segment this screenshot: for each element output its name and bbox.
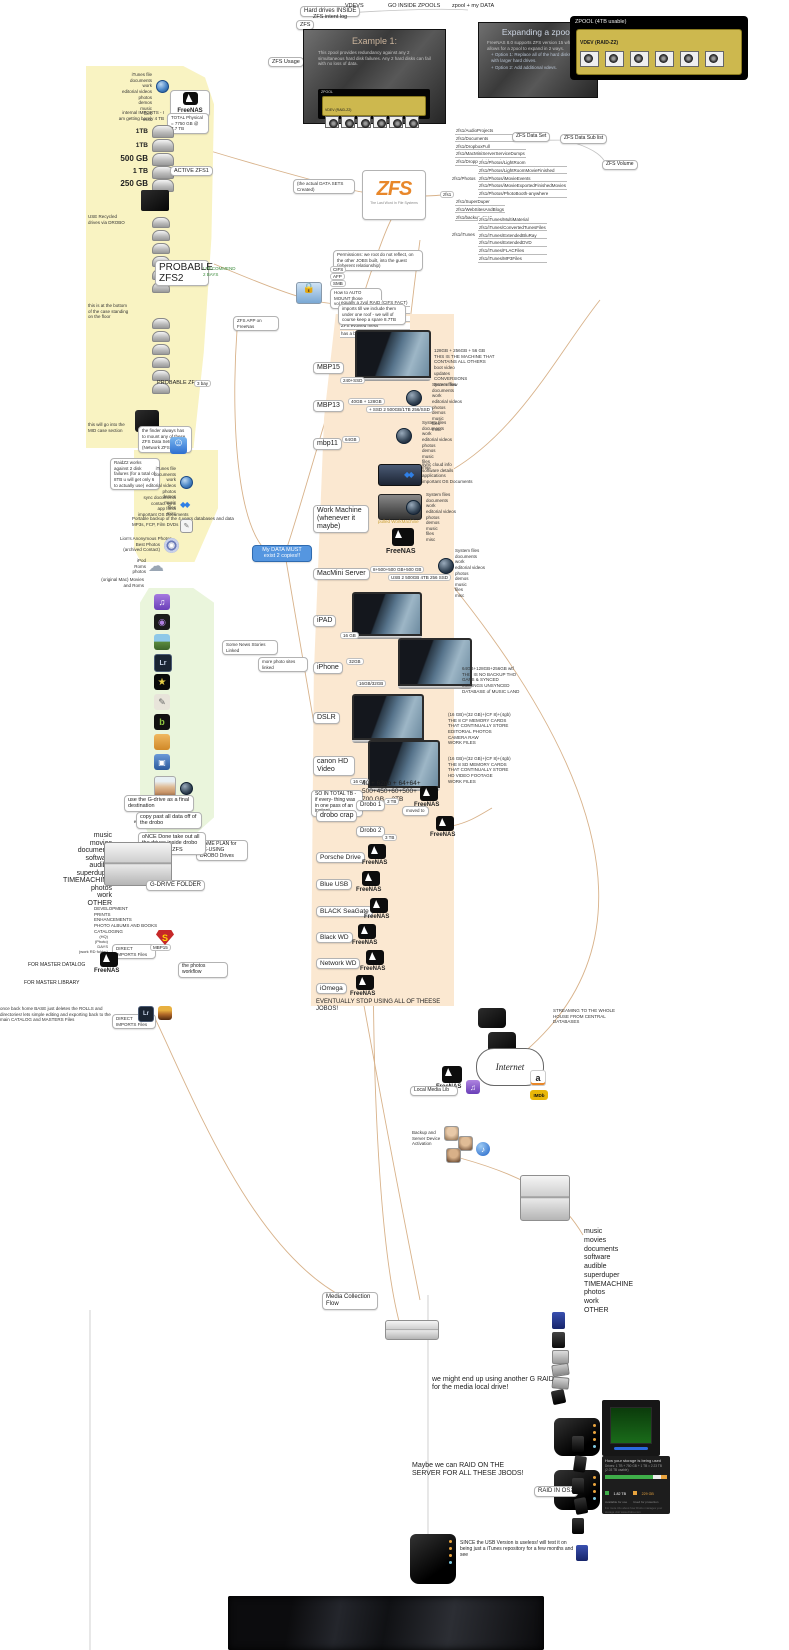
list-item: zfs1/iTunes/FLACFiles xyxy=(478,248,547,255)
recycled-drives-note: USE Recycled drives via DROBO xyxy=(88,214,128,225)
avatar-icon xyxy=(444,1126,459,1141)
macmini-usb-tag: USB 2 500GB 4TB 256 SSD xyxy=(388,574,451,581)
node-porsche-drive[interactable]: Porsche Drive xyxy=(316,852,365,863)
list-item: WORK FILES xyxy=(448,740,508,746)
node-probable-zfs2[interactable]: PROBABLE ZFS2 xyxy=(155,260,209,286)
aperture-app-icon[interactable]: ◉ xyxy=(154,614,170,630)
machine-content-list: System filesdocumentsworkeditorial video… xyxy=(455,548,500,599)
slide-zpool-box: ZPOOL VDEV (RAID-Z2) xyxy=(318,89,430,119)
zfs-app-freenas-label[interactable]: ZFS APP on FreeNas xyxy=(233,316,279,331)
list-item: zfs1/Photos/iMovieExportedFinishedMovies xyxy=(478,183,567,190)
list-item: photos xyxy=(60,885,112,893)
network-globe-icon[interactable] xyxy=(438,558,454,574)
iphone-image xyxy=(398,638,472,689)
node-media-collection-flow[interactable]: Media Collection Flow xyxy=(322,1292,378,1310)
ipad-storage-tag: 16 GB xyxy=(340,632,359,639)
node-work-machine[interactable]: Work Machine (whenever it maybe) xyxy=(313,505,369,533)
node-drobo1[interactable]: Drobo 1 xyxy=(356,800,385,811)
dslr-image xyxy=(352,694,424,743)
gdrive-step2[interactable]: copy past all data off of the drobo xyxy=(136,812,202,829)
drive-label: 1TB xyxy=(126,128,148,136)
mindmap-canvas: Hard drives INSIDE VDEVS GO INSIDE ZPOOL… xyxy=(0,0,789,1650)
zfs-photos-children[interactable]: zfs1/Photos/LightRoomzfs1/Photos/LightRo… xyxy=(478,160,567,199)
node-mbp11[interactable]: mbp11 xyxy=(313,438,342,450)
photos-app-icon[interactable] xyxy=(154,634,170,650)
label-vdevs[interactable]: VDEVS xyxy=(345,3,364,10)
dvd-disc-icon[interactable] xyxy=(164,538,179,553)
freenas-icon[interactable] xyxy=(420,786,438,801)
node-iomega[interactable]: iOmega xyxy=(316,983,347,994)
shared-folder-lock-icon[interactable]: 🔒 xyxy=(296,282,322,304)
legend-label: Used for protection xyxy=(633,1500,658,1504)
list-item: sync documents xyxy=(138,495,176,501)
mbp15-tag: MBP15 xyxy=(150,944,171,951)
portable-backup-list: Portable backup of the 4 years databases… xyxy=(132,516,176,527)
node-network-wd[interactable]: Network WD xyxy=(316,958,360,969)
work-hdd-caption: pulled WorkMachine xyxy=(378,519,419,525)
network-globe-icon[interactable] xyxy=(180,476,193,489)
mbp11-storage-tag: 64GB xyxy=(342,436,360,443)
list-item: work xyxy=(60,892,112,900)
list-item: important OS Documents xyxy=(422,479,472,485)
list-item: zfs1/Photos/LightRoomMovieFinished xyxy=(478,168,567,175)
recommend-note: I RECOMMEND 2 BAYS xyxy=(203,266,237,277)
list-item: documents xyxy=(584,1246,633,1255)
legend-swatch xyxy=(605,1491,609,1495)
hard-drive-icon[interactable] xyxy=(152,243,170,254)
node-dslr[interactable]: DSLR xyxy=(313,712,340,724)
freenas-icon[interactable] xyxy=(436,816,454,831)
list-item: zfs1/Photos/iMovieEvents xyxy=(478,176,567,183)
network-globe-icon[interactable] xyxy=(156,80,169,93)
list-item: photos xyxy=(122,569,146,575)
appletv-icon[interactable] xyxy=(478,1008,506,1028)
black-drive-icon[interactable] xyxy=(574,1497,589,1515)
usb-version-note: SINCE the USB Version is useless! will t… xyxy=(460,1540,576,1558)
list-item: software xyxy=(584,1254,633,1263)
node-canon-hd-video[interactable]: canon HD Video xyxy=(313,756,355,776)
canon-detail-list: (16 GB)+(32 GB)+(CF 8)+(4gb)THE 8 SD MEM… xyxy=(448,756,508,784)
news-links-label[interactable]: Some News Stories Linked xyxy=(222,640,278,655)
vdev-label: VDEV (RAID-Z2) xyxy=(325,108,351,112)
disk-icon xyxy=(605,51,624,67)
disk-icon xyxy=(405,116,419,128)
list-item: editorial videos xyxy=(142,483,176,489)
dropbox-icon[interactable]: ◆◆ xyxy=(404,470,412,479)
disk-icon xyxy=(357,116,371,128)
freenas-icon[interactable] xyxy=(392,528,414,546)
boxee-app-icon[interactable]: b xyxy=(154,714,170,730)
lightroom-app-icon[interactable]: Lr xyxy=(154,654,172,672)
jbod-footer-note: EVENTUALLY STOP USING ALL OF THEESE JOBO… xyxy=(316,999,456,1013)
freenas-label: FreeNAS xyxy=(350,991,375,997)
freenas-label: FreeNAS xyxy=(94,968,119,974)
raid-server-note: Maybe we can RAID ON THE SERVER FOR ALL … xyxy=(412,1462,524,1479)
drobo-dashboard-screenshot xyxy=(602,1400,660,1456)
slide-title: Example 1: xyxy=(304,36,445,46)
drobo-back-image xyxy=(141,190,169,211)
node-iphone[interactable]: iPhone xyxy=(313,662,343,674)
list-item: music xyxy=(60,832,112,840)
mbp13-storage-tag: 40GB + 128GB xyxy=(348,398,385,405)
protocol-smb[interactable]: SMB xyxy=(330,280,346,287)
freenas-label: FreeNAS xyxy=(364,914,389,920)
bottom-screenshot-strip xyxy=(228,1596,544,1650)
disk-icon xyxy=(680,51,699,67)
freenas-icon xyxy=(183,92,198,105)
vmware-app-icon[interactable]: ▣ xyxy=(154,754,170,770)
gdrive-step1[interactable]: use the G-drive as a final destination xyxy=(124,795,194,812)
list-item: zfs1/iTunes/ExtendedDVD xyxy=(478,240,547,247)
freenas-label: FreeNAS xyxy=(386,548,416,555)
textedit-icon[interactable]: ✎ xyxy=(180,519,193,533)
slide-body: This zpool provides redundancy against a… xyxy=(318,50,433,67)
label-zpool-my-data[interactable]: zpool + my DATA xyxy=(452,3,494,10)
photo-sites-label[interactable]: more photo sites linked xyxy=(258,657,308,672)
list-item: MUSINGS UNSYNCED xyxy=(462,683,518,689)
list-item: work xyxy=(584,1298,633,1307)
zfs-logo-caption: The Last Word In File Systems xyxy=(366,201,422,205)
freenas-label: FreeNAS xyxy=(414,802,439,808)
silver-drive-icon[interactable] xyxy=(552,1376,570,1389)
itunes-blue-icon[interactable]: ♪ xyxy=(476,1142,490,1156)
master-datalog-label: FOR MASTER DATALOG xyxy=(28,962,85,968)
node-mbp13[interactable]: MBP13 xyxy=(313,400,344,412)
dvd-archive-list: Lion's Anonymous PhotosBest Photos(archi… xyxy=(120,536,160,553)
lightroom-icon[interactable]: Lr xyxy=(138,1006,154,1022)
node-drobo2[interactable]: Drobo 2 xyxy=(356,826,385,837)
graid-plan-note: we might end up using another G RAID for… xyxy=(432,1376,554,1393)
list-item: Lion's Anonymous Photos xyxy=(120,536,160,542)
photo-tasks-list: DEVELOPMENTPRINTSENHANCEMENTSPHOTO ALBUM… xyxy=(94,906,164,934)
graid-image xyxy=(520,1175,570,1221)
legend-value: 229 GB xyxy=(642,1492,654,1496)
label-go-inside-zpools[interactable]: GO INSIDE ZPOOLS xyxy=(388,3,440,10)
vdev-box: VDEV (RAID-Z2) xyxy=(576,29,742,75)
itunes-app-icon[interactable]: ♫ xyxy=(154,594,170,610)
backup-activation-note: Backup and Server Device Activation xyxy=(412,1130,446,1147)
hard-drive-icon[interactable] xyxy=(152,217,170,228)
hard-drive-icon[interactable] xyxy=(152,139,174,152)
node-zfs-data-sub-list[interactable]: ZFS Data Sub list xyxy=(560,134,607,144)
freenas-icon[interactable] xyxy=(358,924,376,939)
superman-logo-icon: S xyxy=(156,930,174,945)
permissions-note[interactable]: Permissions: we root do not reflect, on … xyxy=(333,250,423,271)
list-item: (16 GB)+(32 GB)+(CF 8)+(4gb) xyxy=(448,756,508,762)
node-blue-usb[interactable]: Blue USB xyxy=(316,879,352,890)
black-drive-icon[interactable] xyxy=(552,1332,565,1348)
node-zfs-logo[interactable]: ZFS The Last Word In File Systems xyxy=(362,170,426,220)
vdev-box: VDEV (RAID-Z2) xyxy=(322,96,426,116)
label-zfs-intent-log[interactable]: ZFS intent log xyxy=(313,14,347,21)
network-globe-icon[interactable] xyxy=(396,428,412,444)
hard-drive-icon[interactable] xyxy=(152,230,170,241)
imports-note: internal IMPORTS - I am getting barely 4… xyxy=(118,110,164,121)
work-dropbox-list: sync cloud infosoftware detailsapplicati… xyxy=(422,462,472,485)
disk-icon xyxy=(655,51,674,67)
macmini-storage-tag: 8+500+500 GB+500 GB xyxy=(370,566,424,573)
media-graid-image xyxy=(385,1320,439,1340)
mbp15-storage-tag: 240+SSD xyxy=(340,377,365,384)
list-item: zfs1/Photos/LightRoom xyxy=(478,160,567,167)
list-item: zfs1/iTunes/MP3Files xyxy=(478,256,547,263)
nas-cube-image xyxy=(410,1534,456,1584)
black-drive-icon[interactable] xyxy=(572,1478,584,1494)
legend-label: Available for use xyxy=(605,1500,627,1504)
mobileme-cloud-icon[interactable]: ☁ xyxy=(148,556,164,576)
freenas-icon[interactable] xyxy=(366,950,384,965)
back-home-note: once back home BASE just deletes the ROL… xyxy=(0,1006,112,1023)
avatar-icon xyxy=(446,1148,461,1163)
portrait-icon xyxy=(158,1006,172,1020)
network-globe-icon[interactable] xyxy=(406,500,421,515)
folder-app-icon[interactable] xyxy=(154,734,170,750)
node-drobo-crap[interactable]: drobo crap xyxy=(316,810,357,822)
node-zfs-usage[interactable]: ZFS Usage xyxy=(268,57,304,67)
silver-drive-icon[interactable] xyxy=(552,1350,569,1364)
work-drive-image xyxy=(378,464,422,486)
dropbox-icon[interactable]: ◆◆ xyxy=(180,500,188,509)
node-mbp15[interactable]: MBP15 xyxy=(313,362,344,374)
blue-drive-icon[interactable] xyxy=(552,1312,565,1329)
node-gdrive-folder[interactable]: G-DRIVE FOLDER xyxy=(146,880,205,891)
network-globe-icon[interactable] xyxy=(406,390,422,406)
drive-label: 1 TB xyxy=(122,168,148,176)
network-globe-icon[interactable] xyxy=(180,782,193,795)
disk-icon xyxy=(341,116,355,128)
list-item: 128GB + 256GB + 56 GB xyxy=(434,348,494,354)
machine-content-list: System filesdocumentsworkeditorial video… xyxy=(426,492,476,543)
list-item: editorial videos xyxy=(120,89,152,95)
zpool-label: ZPOOL xyxy=(321,90,333,94)
node-macmini-server[interactable]: MacMini Server xyxy=(313,568,370,580)
internet-label: Internet xyxy=(496,1062,525,1072)
zpool-title: ZPOOL (4TB usable) xyxy=(575,19,626,26)
legend-swatch xyxy=(633,1491,637,1495)
master-library-label: FOR MASTER LIBRARY xyxy=(24,980,79,986)
zfs3-tag: 3 bay xyxy=(194,380,211,387)
hard-drive-icon[interactable] xyxy=(152,153,174,166)
list-item: zfs1/iTunes/ExtendedBluRay xyxy=(478,233,547,240)
list-item: (archived Contact) xyxy=(120,547,160,553)
panel-title: How your storage is being used xyxy=(605,1458,667,1463)
list-item: TIMEMACHINE xyxy=(584,1281,633,1290)
legend-value: 1.82 TB xyxy=(613,1492,626,1496)
panel-drives-line: Drives: 1 TB + 750 GB + 1 TB = 2.23 TB (… xyxy=(605,1464,667,1472)
example1-slide: Example 1: This zpool provides redundanc… xyxy=(303,29,446,124)
mbp13-ssd-tag: + SSD 2 500GB/1TB 256/SSD xyxy=(366,406,433,413)
dropbox-sync-list: sync documentscontact syncapp fontsimpor… xyxy=(138,495,176,518)
mid-case-note: this will go into the MID case section xyxy=(88,422,128,433)
blue-drive-icon[interactable] xyxy=(576,1545,588,1561)
zfs-itunes-parent[interactable]: zfs1/iTunes xyxy=(452,232,475,238)
freenas-label: FreeNAS xyxy=(352,940,377,946)
hard-drive-icon[interactable] xyxy=(152,125,174,138)
list-item: superduper xyxy=(584,1272,633,1281)
drobo1-size-tag: 3 TB xyxy=(384,798,399,805)
disk-icon xyxy=(325,116,339,128)
freenas-icon[interactable] xyxy=(370,898,388,913)
node-zfs-volume[interactable]: ZFS Volume xyxy=(602,160,638,170)
finder-icon[interactable]: ☺ xyxy=(170,437,187,454)
freenas-icon[interactable] xyxy=(356,975,374,990)
zfs-logo-text: ZFS xyxy=(366,178,422,201)
list-item: OTHER xyxy=(584,1307,633,1316)
black-drive-icon[interactable] xyxy=(572,1518,584,1534)
list-item: zfs1/WebSitesAndBlogs xyxy=(455,207,505,214)
disk-icon xyxy=(389,116,403,128)
hq-days-list: (HQ)(Photo)DAYS(work RD folder) xyxy=(72,934,108,954)
disk-icon xyxy=(373,116,387,128)
list-item: audible xyxy=(584,1263,633,1272)
mbp15-image xyxy=(355,330,431,381)
imdb-icon[interactable]: IMDb xyxy=(530,1090,548,1100)
node-active-zfs1[interactable]: ACTIVE ZFS1 xyxy=(170,166,213,176)
node-photos-workflow[interactable]: the photos workflow xyxy=(178,962,228,978)
node-black-wd[interactable]: Black WD xyxy=(316,932,353,943)
list-item: zfs1/MacMiniServerServiceDumps xyxy=(455,151,526,158)
dslr-detail-list: (16 GB)+(32 GB)+(CF 8)+(4gb)THE 8 CF MEM… xyxy=(448,712,508,746)
zfs1-tag: zfs1 xyxy=(440,191,454,198)
iphone-capacity-tag: 16GB/32GB xyxy=(356,680,386,687)
list-item: WORK FILES xyxy=(448,779,508,785)
zpool-4tb-box: ZPOOL (4TB usable) VDEV (RAID-Z2) xyxy=(570,16,748,80)
disk-icon xyxy=(630,51,649,67)
node-zfs-data-set[interactable]: ZFS Data Set xyxy=(512,132,550,142)
list-item: PHOTO ALBUMS AND BOOKS xyxy=(94,923,164,929)
drive-label: 250 GB xyxy=(112,179,148,189)
list-item: misc xyxy=(426,537,476,543)
freenas-label: FreeNAS xyxy=(356,887,381,893)
freenas-label: FreeNAS xyxy=(362,860,387,866)
panel-capacity-bar xyxy=(605,1475,667,1479)
mobileme-caption: (original Mac) Movies and Roms xyxy=(96,577,144,588)
freenas-label: FreeNAS xyxy=(360,966,385,972)
list-item: zfs1/iTunes/ConvertedTunesFiles xyxy=(478,225,547,232)
hard-drive-icon[interactable] xyxy=(152,344,170,355)
node-data-must-exist[interactable]: My DATA MUST exist 2 copies!! xyxy=(252,545,312,562)
freenas-label: FreeNAS xyxy=(430,832,455,838)
hard-drive-icon[interactable] xyxy=(152,357,170,368)
amazon-icon[interactable]: a xyxy=(530,1070,546,1086)
list-item: MP3s, FCP, Film DVDs xyxy=(132,522,176,528)
list-item: zfs1/Photos/PhotoBooth-anywhere xyxy=(478,191,567,198)
black-drive-icon[interactable] xyxy=(572,1436,584,1452)
freenas-icon[interactable] xyxy=(368,844,386,859)
list-item: (16 GB)+(32 GB)+(CF 8)+(4gb) xyxy=(448,712,508,718)
list-item: zfs1/DropboxFull xyxy=(455,144,526,151)
list-item: 64GB+128GB+256GB wtf xyxy=(462,666,518,672)
node-local-media-lib[interactable]: Local Media Lib xyxy=(410,1086,458,1096)
freenas-icon[interactable] xyxy=(362,871,380,886)
case-bottom-note: this is at the bottom of the case standi… xyxy=(88,303,130,320)
zfs-photos-parent[interactable]: zfs1/Photos xyxy=(452,176,476,182)
list-item: DATABASE of MUSIC LAND xyxy=(462,689,518,695)
drive-label: 1TB xyxy=(126,142,148,150)
starcraft-app-icon[interactable]: ★ xyxy=(154,674,170,690)
streaming-note: STREAMING TO THE WHOLE HOUSE FROM CENTRA… xyxy=(553,1008,625,1025)
silver-drive-icon[interactable] xyxy=(551,1363,570,1377)
itunes-purple-icon[interactable]: ♫ xyxy=(466,1080,480,1094)
list-item: photos xyxy=(584,1289,633,1298)
black-drive-icon[interactable] xyxy=(573,1455,587,1473)
list-item: music xyxy=(584,1228,633,1237)
drobo-storage-panel: How your storage is being used Drives: 1… xyxy=(602,1456,670,1514)
disk-icon xyxy=(580,51,599,67)
list-item: zfs1/SuperDuper xyxy=(455,199,505,206)
iphone-detail-list: 64GB+128GB+256GB wtfTHIS IS NO BACKUP TH… xyxy=(462,666,518,694)
list-item: zfs1/iTunes/MultiMaterial xyxy=(478,217,547,224)
drobo2-size-tag: 3 TB xyxy=(382,834,397,841)
freenas-icon[interactable] xyxy=(442,1066,462,1083)
freenas-icon[interactable] xyxy=(100,952,118,967)
iphone-storage-tag: 32GB xyxy=(346,658,364,665)
disk-icon xyxy=(705,51,724,67)
vdev-label: VDEV (RAID-Z2) xyxy=(580,40,618,46)
drive-label: 500 GB xyxy=(114,154,148,164)
scrivener-app-icon[interactable]: ✎ xyxy=(154,694,170,710)
hard-drive-icon[interactable] xyxy=(152,331,170,342)
zfs-itunes-children[interactable]: zfs1/iTunes/MultiMaterialzfs1/iTunes/Con… xyxy=(478,217,547,264)
devices-top-note[interactable]: imports till we include them under one r… xyxy=(338,304,406,325)
datasets-created-label[interactable]: (the actual DATA SETS Created) xyxy=(293,179,355,194)
panel-footnote: For more info about how Drobo manages yo… xyxy=(605,1506,667,1514)
mobileme-list: iPodRomsphotos xyxy=(122,558,146,575)
ipad-image xyxy=(352,592,422,639)
list-item: Portable backup of the 4 years databases… xyxy=(132,516,176,522)
node-ipad[interactable]: iPAD xyxy=(313,615,336,627)
hard-drive-icon[interactable] xyxy=(152,318,170,329)
list-item: movies xyxy=(584,1237,633,1246)
list-item: misc xyxy=(455,593,500,599)
media-content-list: musicmoviesdocumentssoftwareaudiblesuper… xyxy=(584,1228,633,1316)
